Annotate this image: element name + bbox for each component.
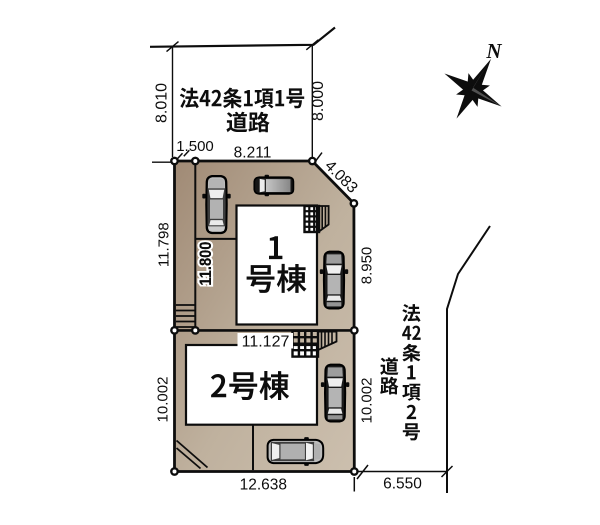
- svg-text:11.127: 11.127: [242, 334, 290, 351]
- svg-text:11.800: 11.800: [197, 242, 215, 286]
- svg-text:10.002: 10.002: [154, 377, 171, 423]
- svg-text:8.010: 8.010: [154, 83, 171, 123]
- svg-text:12.638: 12.638: [240, 477, 287, 494]
- svg-text:6.550: 6.550: [383, 476, 422, 493]
- svg-text:8.000: 8.000: [310, 81, 327, 121]
- svg-text:8.211: 8.211: [234, 144, 272, 161]
- svg-text:N: N: [485, 39, 502, 63]
- svg-text:10.002: 10.002: [359, 378, 376, 424]
- svg-text:8.950: 8.950: [359, 247, 376, 285]
- svg-text:11.798: 11.798: [156, 222, 173, 267]
- svg-text:1.500: 1.500: [176, 138, 214, 155]
